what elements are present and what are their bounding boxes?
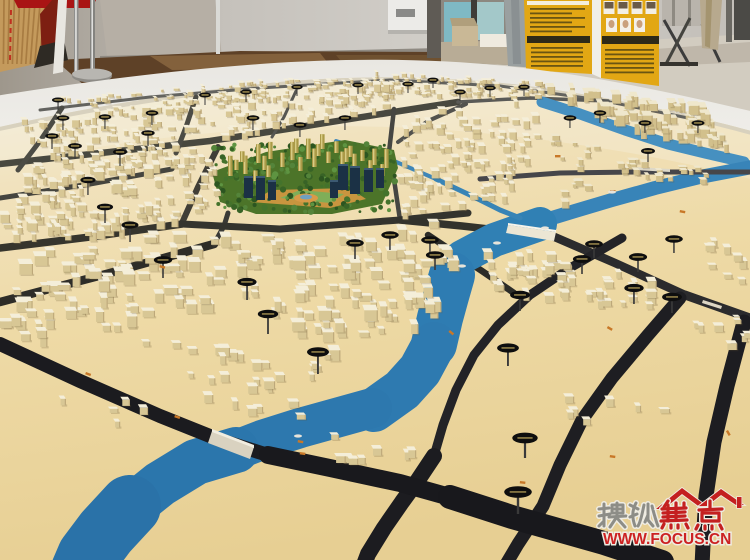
svg-text:WWW.FOCUS.CN: WWW.FOCUS.CN — [603, 531, 731, 548]
